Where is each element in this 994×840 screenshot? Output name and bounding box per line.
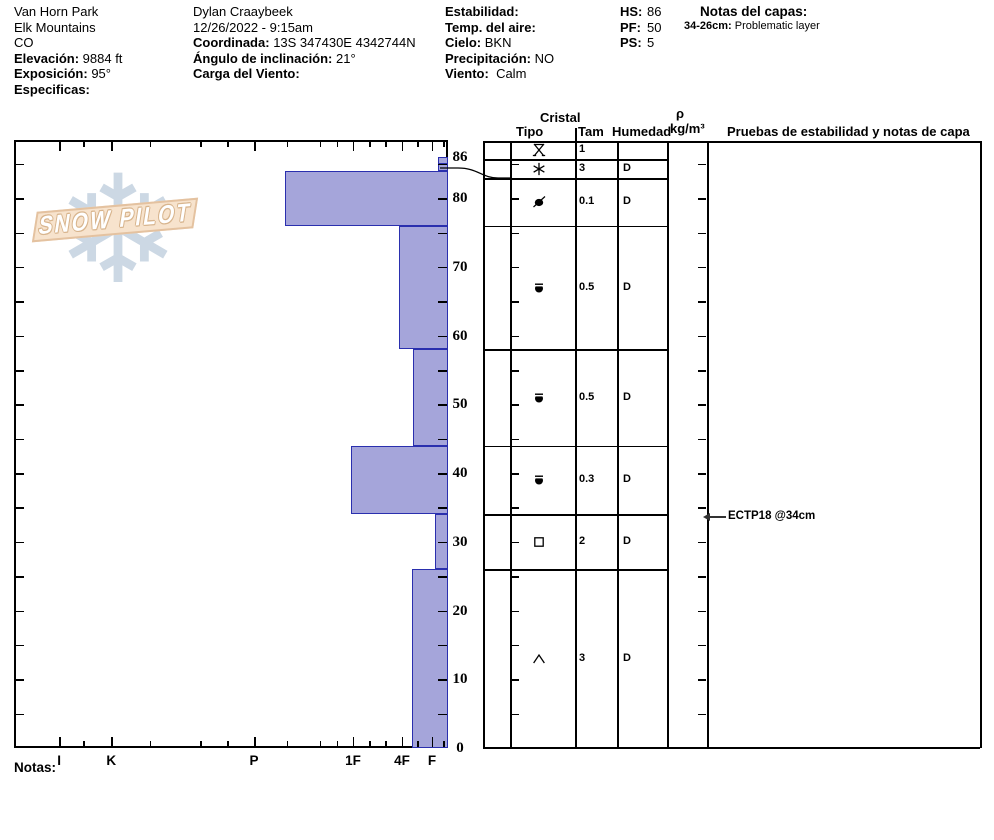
depth-minor-tick [698,404,706,406]
grain-symbol-depth-hoar [520,651,542,667]
hardness-axis-label: 1F [338,753,368,768]
depth-minor-tick [511,404,519,406]
moisture-value: D [623,195,631,207]
table-column-border [483,141,485,748]
layer-row-border [483,446,667,448]
depth-minor-tick [438,507,447,509]
depth-minor-tick [438,679,447,681]
moisture-value: D [623,162,631,174]
depth-minor-tick [15,576,24,578]
hardness-axis-label: 4F [387,753,417,768]
grain-size-value: 1 [579,143,585,155]
depth-minor-tick [15,233,24,235]
depth-tick-label: 20 [447,603,473,620]
depth-minor-tick [511,301,519,303]
hardness-minor-tick [385,141,387,147]
ps-total: PS:5 [620,35,661,51]
totals-block: HS:86 PF:50 PS:5 [620,4,661,51]
site-info-block: Van Horn Park Elk Mountains CO Elevación… [14,4,122,98]
table-column-border [617,141,619,748]
moisture-value: D [623,281,631,293]
depth-tick-label: 80 [447,190,473,207]
depth-minor-tick [438,714,447,716]
hardness-minor-tick [83,741,85,747]
depth-minor-tick [698,370,706,372]
depth-minor-tick [698,611,706,613]
depth-minor-tick [438,233,447,235]
layer-row-border [483,226,667,228]
hardness-minor-tick [385,741,387,747]
table-column-border [510,141,512,748]
depth-minor-tick [698,542,706,544]
hardness-axis-label: F [417,753,447,768]
depth-minor-tick [698,233,706,235]
hardness-major-tick [254,737,256,747]
layer-note: 34-26cm: Problematic layer [684,20,820,33]
grain-symbol-surface-hoar [520,142,542,158]
hardness-axis-label: P [239,753,269,768]
layer-row-border [483,569,667,571]
hardness-minor-tick [337,741,339,747]
hardness-minor-tick [200,141,202,147]
observer-info-block: Dylan Craaybeek 12/26/2022 - 9:15am Coor… [193,4,416,82]
col-header-tipo: Tipo [516,124,543,139]
rounds-icon [531,390,547,406]
hardness-major-tick [432,141,434,151]
grain-symbol-crust [520,194,542,210]
table-column-border [667,141,669,748]
depth-minor-tick [15,439,24,441]
surface-hoar-icon [531,142,547,158]
grain-size-value: 0.3 [579,473,594,485]
depth-minor-tick [438,164,447,166]
depth-tick-label: 60 [447,328,473,345]
wind: Viento: Calm [445,66,554,82]
depth-minor-tick [511,679,519,681]
depth-minor-tick [698,198,706,200]
depth-minor-tick [15,507,24,509]
snowpilot-profile-page: Van Horn Park Elk Mountains CO Elevación… [0,0,994,840]
depth-minor-tick [15,542,24,544]
col-header-density-units: kg/m³ [670,121,705,136]
depth-minor-tick [438,336,447,338]
hardness-minor-tick [150,141,152,147]
depth-minor-tick [511,611,519,613]
hardness-minor-tick [287,741,289,747]
depth-minor-tick [15,301,24,303]
moisture-value: D [623,473,631,485]
layer-row-border [483,178,667,180]
grain-size-value: 0.5 [579,391,594,403]
site-name: Van Horn Park [14,4,122,20]
hardness-minor-tick [443,141,445,147]
grain-size-value: 3 [579,652,585,664]
depth-hoar-icon [531,651,547,667]
profile-plot-border [14,140,448,748]
depth-minor-tick [698,576,706,578]
layer-bar hardness-4F+ [413,349,448,445]
layer-row-border [483,349,667,351]
rounds-icon [531,472,547,488]
hardness-major-tick [254,141,256,151]
depth-minor-tick [438,611,447,613]
site-aspect: Exposición: 95° [14,66,122,82]
depth-minor-tick [15,645,24,647]
grain-symbol-rounds [520,390,542,406]
layer-row-border [483,514,667,516]
table-top-border [483,141,980,143]
moisture-value: D [623,652,631,664]
observation-datetime: 12/26/2022 - 9:15am [193,20,416,36]
depth-minor-tick [15,679,24,681]
table-column-border [980,141,982,748]
depth-minor-tick [511,439,519,441]
depth-minor-tick [511,233,519,235]
depth-minor-tick [511,714,519,716]
layer-notes-title: Notas del capas: [684,4,820,20]
facets-icon [531,534,547,550]
hardness-minor-tick [417,141,419,147]
depth-minor-tick [698,301,706,303]
hardness-major-tick [59,141,61,151]
depth-minor-tick [511,370,519,372]
stability: Estabilidad: [445,4,554,20]
depth-minor-tick [698,439,706,441]
depth-minor-tick [698,336,706,338]
depth-tick-label: 40 [447,465,473,482]
depth-tick-label: 50 [447,396,473,413]
col-header-density-symbol: ρ [676,106,684,121]
depth-tick-label: 30 [447,534,473,551]
site-specifics: Especificas: [14,82,122,98]
depth-tick-label: 86 [447,149,473,166]
depth-minor-tick [438,404,447,406]
layer-notes-block: Notas del capas: 34-26cm: Problematic la… [684,4,820,33]
table-column-border [575,128,577,748]
hardness-minor-tick [320,741,322,747]
precipitation: Precipitación: NO [445,51,554,67]
depth-minor-tick [15,404,24,406]
hardness-major-tick [353,141,355,151]
hardness-minor-tick [320,141,322,147]
grain-symbol-rounds [520,280,542,296]
stellar-icon [531,161,547,177]
table-bottom-border [483,747,980,749]
hardness-minor-tick [150,741,152,747]
hardness-minor-tick [83,141,85,147]
depth-minor-tick [698,645,706,647]
layer-bar hardness-4F+ [412,569,448,748]
depth-minor-tick [15,198,24,200]
hardness-major-tick [402,737,404,747]
depth-minor-tick [438,301,447,303]
depth-minor-tick [438,576,447,578]
hardness-minor-tick [227,141,229,147]
grain-symbol-stellar [520,161,542,177]
hardness-minor-tick [369,741,371,747]
depth-minor-tick [698,679,706,681]
depth-minor-tick [511,267,519,269]
depth-minor-tick [15,370,24,372]
pf-total: PF:50 [620,20,661,36]
moisture-value: D [623,535,631,547]
hs-total: HS:86 [620,4,661,20]
depth-minor-tick [438,439,447,441]
wind-loading: Carga del Viento: [193,66,416,82]
depth-minor-tick [698,267,706,269]
hardness-major-tick [59,737,61,747]
slope-angle: Ángulo de inclinación: 21° [193,51,416,67]
depth-tick-label: 10 [447,671,473,688]
depth-minor-tick [438,267,447,269]
hardness-minor-tick [227,741,229,747]
hardness-minor-tick [443,741,445,747]
crust-icon [531,194,547,210]
depth-minor-tick [511,576,519,578]
hardness-major-tick [432,737,434,747]
grain-size-value: 0.5 [579,281,594,293]
hardness-minor-tick [287,141,289,147]
depth-minor-tick [511,198,519,200]
moisture-value: D [623,391,631,403]
observer-name: Dylan Craaybeek [193,4,416,20]
depth-minor-tick [15,267,24,269]
coordinate: Coordinada: 13S 347430E 4342744N [193,35,416,51]
depth-minor-tick [15,164,24,166]
depth-minor-tick [438,542,447,544]
grain-size-value: 0.1 [579,195,594,207]
depth-minor-tick [511,645,519,647]
hardness-minor-tick [369,141,371,147]
hardness-major-tick [402,141,404,151]
sky-cover: Cielo: BKN [445,35,554,51]
depth-minor-tick [438,645,447,647]
col-header-cristal: Cristal [540,110,580,125]
depth-tick-label: 0 [447,740,473,757]
depth-minor-tick [15,714,24,716]
depth-minor-tick [511,164,519,166]
depth-minor-tick [15,336,24,338]
grain-symbol-facets [520,534,542,550]
depth-minor-tick [511,473,519,475]
depth-minor-tick [698,473,706,475]
col-header-stability-tests: Pruebas de estabilidad y notas de capa [727,124,970,139]
col-header-humedad: Humedad [612,124,671,139]
depth-minor-tick [511,336,519,338]
hardness-major-tick [111,737,113,747]
layer-bar hardness-1F [351,446,448,515]
depth-minor-tick [511,542,519,544]
depth-minor-tick [438,370,447,372]
depth-minor-tick [15,611,24,613]
depth-minor-tick [15,473,24,475]
stability-test-label: ECTP18 @34cm [728,510,815,522]
notes-label: Notas: [14,760,56,775]
depth-minor-tick [438,473,447,475]
depth-minor-tick [698,714,706,716]
hardness-major-tick [353,737,355,747]
depth-minor-tick [698,164,706,166]
layer-bar hardness-P- [285,171,448,226]
grain-symbol-rounds [520,472,542,488]
grain-size-value: 2 [579,535,585,547]
site-state: CO [14,35,122,51]
hardness-major-tick [111,141,113,151]
hardness-axis-label: K [96,753,126,768]
depth-minor-tick [438,198,447,200]
weather-info-block: Estabilidad: Temp. del aire: Cielo: BKN … [443,4,554,82]
air-temp: Temp. del aire: [445,20,554,36]
table-column-border [707,141,709,748]
depth-tick-label: 70 [447,259,473,276]
rounds-icon [531,280,547,296]
hardness-minor-tick [200,741,202,747]
grain-size-value: 3 [579,162,585,174]
layer-row-border [483,159,667,161]
hardness-minor-tick [337,141,339,147]
site-elevation: Elevación: 9884 ft [14,51,122,67]
depth-minor-tick [698,507,706,509]
depth-minor-tick [511,507,519,509]
hardness-minor-tick [417,741,419,747]
site-range: Elk Mountains [14,20,122,36]
col-header-tam: Tam [578,124,604,139]
layer-bar hardness-4F [399,226,448,350]
